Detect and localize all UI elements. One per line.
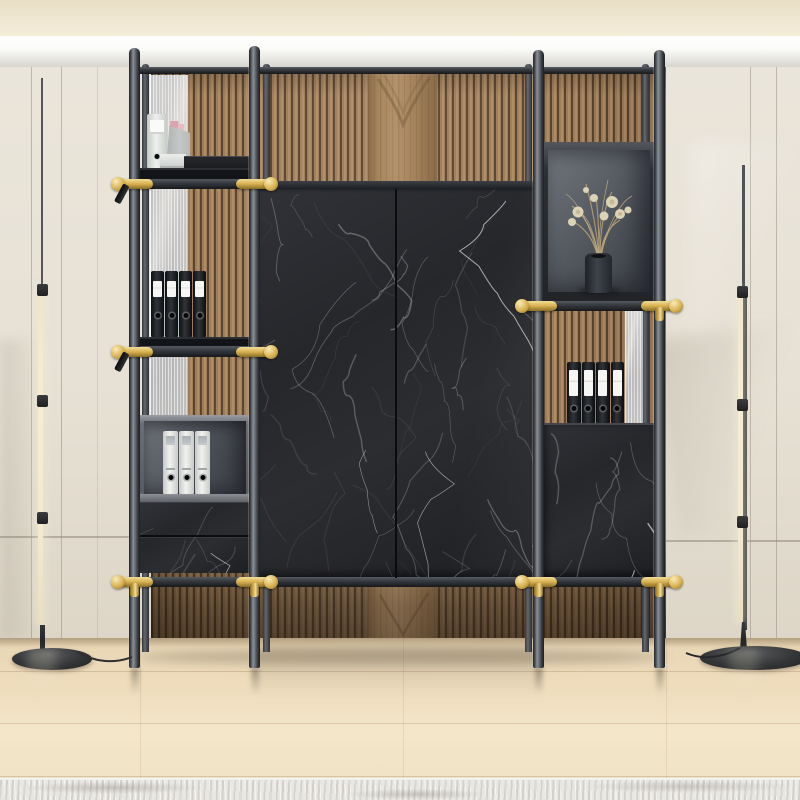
wall-right-shadow-patch: [651, 321, 800, 539]
brass-clamp: [236, 577, 273, 587]
binder-hole: [615, 406, 620, 411]
leg-reflection: [251, 668, 259, 694]
binder-label: [150, 120, 164, 132]
binder-black: [165, 271, 178, 337]
brass-cap: [669, 299, 683, 313]
binder-hole: [168, 475, 173, 480]
brass-cap: [264, 575, 278, 589]
lamp-rod-upper: [41, 78, 44, 290]
brass-cap: [515, 299, 529, 313]
binder-label: [167, 281, 176, 297]
lamp-clip: [37, 395, 48, 407]
binder-slot: [198, 468, 208, 470]
ceiling-band: [0, 0, 800, 36]
brass-clamp: [520, 301, 557, 311]
wall-left-seam-3: [97, 67, 98, 638]
binder-black: [596, 362, 610, 423]
front-pole-2: [249, 46, 260, 668]
center-cabinet-top: [254, 181, 540, 189]
top-rail: [134, 67, 663, 74]
binder-black: [582, 362, 596, 423]
binder-black: [611, 362, 625, 423]
clamp-stub: [130, 583, 139, 597]
binder-label: [195, 281, 204, 297]
binder-hole: [586, 406, 591, 411]
leg-reflection: [131, 668, 139, 694]
clamp-stub: [655, 307, 664, 321]
binder-hole: [184, 475, 189, 480]
binder-hole: [169, 313, 174, 318]
bottom-rail: [134, 577, 663, 587]
black-binder-row-left: [151, 271, 206, 337]
binder-hole: [183, 313, 188, 318]
shelf2-slab: [138, 337, 252, 346]
vase: [585, 253, 612, 293]
dried-flower-bouquet: [548, 172, 648, 260]
lamp-led-strip: [38, 290, 43, 625]
brass-clamp: [236, 179, 273, 189]
brass-clamp: [116, 179, 153, 189]
binder-slot: [182, 468, 192, 470]
brass-cap: [111, 575, 125, 589]
brass-clamp: [520, 577, 557, 587]
clamp-stub: [250, 583, 259, 597]
lamp-clip: [737, 399, 748, 411]
binder-hole: [571, 406, 576, 411]
leg-reflection: [535, 668, 543, 694]
binder-label: [569, 370, 578, 396]
front-pole-1: [129, 48, 140, 668]
binder-label: [182, 436, 191, 445]
brass-clamp: [116, 577, 153, 587]
flat-white-binder: [160, 154, 186, 168]
drawer-cabinet: [138, 502, 252, 573]
lamp-rod: [43, 290, 47, 632]
binder-hole: [155, 154, 160, 159]
crown-molding: [0, 36, 800, 68]
binder-hole: [200, 475, 205, 480]
vase-mouth: [591, 254, 606, 258]
lamp-clip: [37, 284, 48, 296]
lamp-rod-upper: [742, 165, 745, 290]
brass-cap: [669, 575, 683, 589]
binder-white: [163, 431, 178, 494]
binder-label: [181, 281, 190, 297]
lamp-clip: [37, 512, 48, 524]
binder-black: [567, 362, 581, 423]
lamp-rod: [743, 290, 747, 630]
binder-white: [195, 431, 210, 494]
brass-clamp: [116, 347, 153, 357]
lamp-floor-glow: [28, 648, 56, 686]
white-binder-row: [163, 431, 210, 494]
lamp-clip: [737, 286, 748, 298]
drawer-divider: [138, 535, 252, 537]
front-pole-4: [654, 50, 665, 668]
black-binder-row-right: [567, 362, 624, 423]
rug: [0, 778, 800, 800]
binder-hole: [155, 313, 160, 318]
binder-black: [179, 271, 192, 337]
binder-white: [179, 431, 194, 494]
leg-reflection: [656, 668, 664, 694]
binder-label: [166, 436, 175, 445]
binder-label: [598, 370, 607, 396]
binder-hole: [197, 313, 202, 318]
binder-black: [193, 271, 206, 337]
wall-right-hseam: [666, 540, 800, 542]
wall-left-seam-2: [61, 67, 62, 638]
lamp-clip: [737, 516, 748, 528]
clamp-stub: [534, 583, 543, 597]
lamp-cable: [70, 646, 140, 666]
open-box-lip: [138, 494, 252, 502]
binder-label: [198, 436, 207, 445]
front-pole-3: [533, 50, 544, 668]
lamp-led-strip: [738, 290, 743, 622]
binder-black: [151, 271, 164, 337]
unit-floor-shadow: [136, 649, 668, 665]
center-door-sheen: [397, 189, 540, 578]
binder-label: [613, 370, 622, 396]
scene: [0, 0, 800, 800]
wall-left-shadow-patch: [0, 340, 40, 640]
binder-label: [153, 281, 162, 297]
brass-clamp: [641, 301, 678, 311]
brass-cap: [515, 575, 529, 589]
binder-label: [584, 370, 593, 396]
glass-panel-right: [625, 311, 643, 424]
top-shelf-slab: [138, 168, 252, 179]
brass-cap: [264, 177, 278, 191]
binder-slot: [166, 468, 176, 470]
brass-clamp: [641, 577, 678, 587]
base-cabinet: [540, 423, 658, 578]
brass-cap: [264, 345, 278, 359]
lamp-floor-glow: [730, 648, 758, 686]
brass-clamp: [236, 347, 273, 357]
clamp-stub: [655, 583, 664, 597]
binder-hole: [600, 406, 605, 411]
